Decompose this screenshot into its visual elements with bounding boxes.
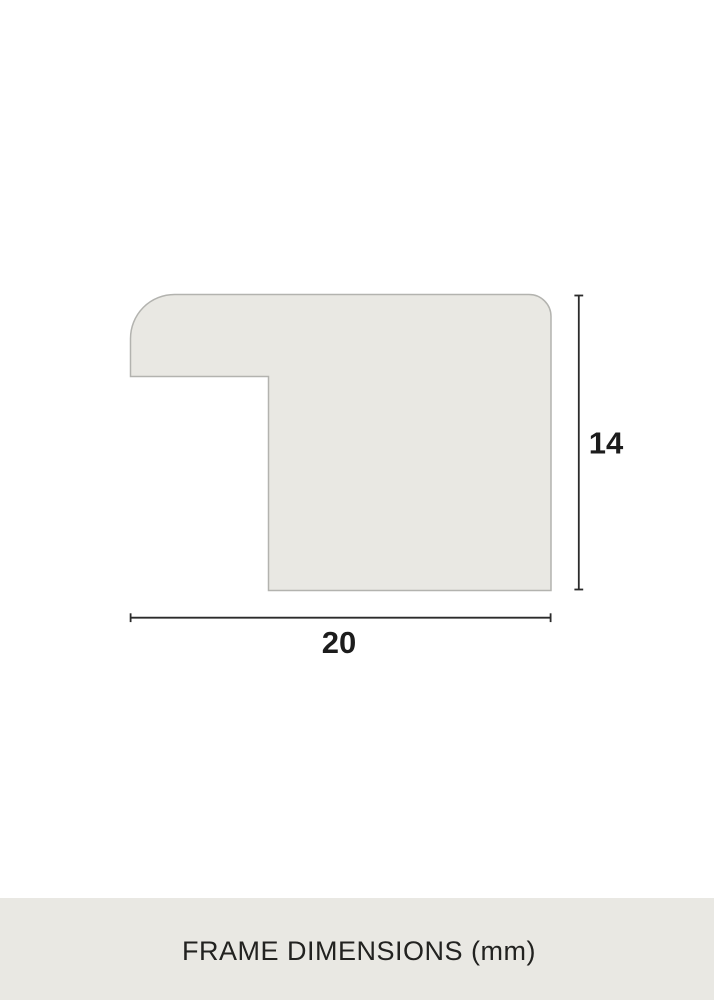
svg-text:20: 20 [322, 625, 356, 660]
svg-text:14: 14 [589, 425, 624, 460]
